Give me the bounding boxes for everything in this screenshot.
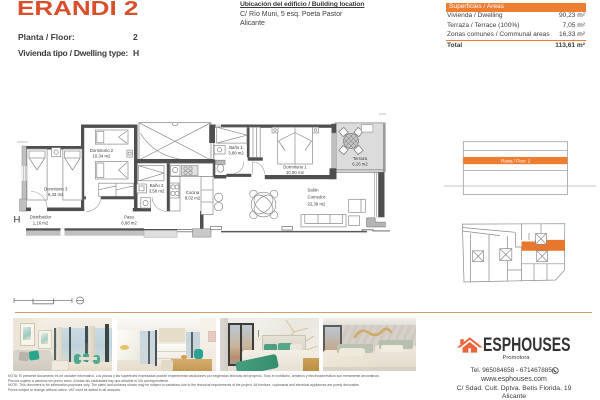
- svg-text:3,88 m2: 3,88 m2: [228, 151, 244, 156]
- svg-text:Planta / Floor: 2: Planta / Floor: 2: [501, 158, 531, 163]
- svg-text:22,39 m2: 22,39 m2: [308, 202, 327, 207]
- svg-text:Dormitorio 1: Dormitorio 1: [283, 164, 307, 169]
- svg-text:Dormitorio 2: Dormitorio 2: [90, 148, 114, 153]
- svg-text:10,34 m2: 10,34 m2: [93, 154, 112, 159]
- svg-text:Cocina: Cocina: [186, 190, 200, 195]
- svg-text:6,26 m2: 6,26 m2: [352, 162, 368, 167]
- svg-text:Paso: Paso: [124, 215, 134, 220]
- svg-text:6,68 m2: 6,68 m2: [121, 220, 137, 225]
- svg-text:Terraza: Terraza: [353, 156, 368, 161]
- svg-text:10,90 m2: 10,90 m2: [286, 170, 305, 175]
- svg-text:Salón: Salón: [308, 188, 320, 193]
- svg-text:Distribuidor: Distribuidor: [30, 215, 52, 220]
- svg-text:9,43 m2: 9,43 m2: [48, 192, 64, 197]
- svg-text:1,16 m2: 1,16 m2: [33, 220, 49, 225]
- svg-text:H: H: [14, 215, 21, 226]
- svg-text:8,02 m2: 8,02 m2: [185, 196, 201, 201]
- svg-text:Baño 2: Baño 2: [150, 183, 164, 188]
- svg-text:Comedor: Comedor: [308, 195, 326, 200]
- svg-text:Baño 1: Baño 1: [229, 145, 243, 150]
- svg-text:Dormitorio 3: Dormitorio 3: [44, 187, 68, 192]
- svg-text:3,58 m2: 3,58 m2: [149, 189, 165, 194]
